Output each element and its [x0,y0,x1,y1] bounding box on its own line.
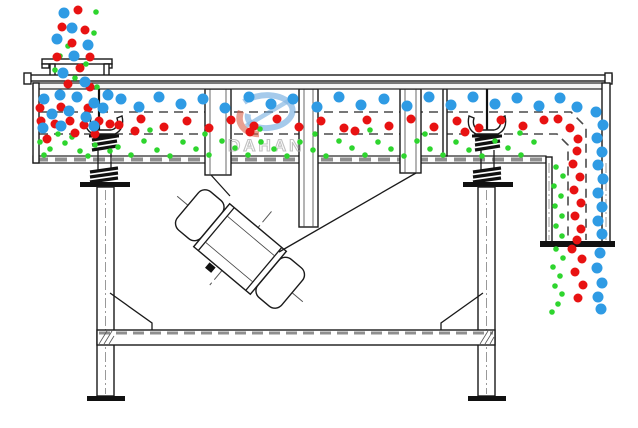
green-particle [107,148,113,154]
spring-assembly-right [463,89,513,187]
green-particle [72,75,78,81]
blue-particle [593,216,604,227]
rib-channel-3 [400,89,421,173]
red-particle [64,80,73,89]
blue-particle [598,120,609,131]
blue-particle [597,202,608,213]
blue-particle [593,188,604,199]
blue-particle [490,99,501,110]
green-particle [553,246,559,252]
green-particle [202,131,208,137]
gusset-left [110,293,152,330]
blue-particle [69,51,80,62]
green-particle [245,152,251,158]
base-plate-left [87,396,125,401]
red-particle [571,212,580,221]
blue-particle [595,248,606,259]
blue-particle [64,106,75,117]
blue-particle [266,99,277,110]
blue-particle [312,102,323,113]
green-particle [193,146,199,152]
blue-particle [89,121,100,132]
green-particle [557,273,563,279]
red-particle [407,115,416,124]
green-particle [310,147,316,153]
green-particle [47,146,53,152]
blue-particle [598,174,609,185]
base-plate-right [468,396,506,401]
cross-beam [97,330,495,345]
green-particle [517,130,523,136]
green-particle [479,153,485,159]
red-particle [430,123,439,132]
green-particle [83,61,89,67]
blue-particle [593,160,604,171]
red-particle [497,116,506,125]
red-particle [568,245,577,254]
spring-seat-plate-right [463,182,513,187]
blue-particle [58,68,69,79]
green-particle [94,84,100,90]
green-particle [284,153,290,159]
red-particle [573,236,582,245]
green-particle [552,283,558,289]
red-particle [569,160,578,169]
red-particle [74,6,83,15]
red-particle [68,39,77,48]
green-particle [518,152,524,158]
red-particle [519,122,528,131]
red-particle [36,104,45,113]
blue-particle [83,40,94,51]
blue-particle [244,92,255,103]
blue-particle [39,94,50,105]
red-particle [566,124,575,133]
blue-particle [512,93,523,104]
green-particle [553,164,559,170]
green-particle [92,142,98,148]
red-particle [317,117,326,126]
green-particle [388,146,394,152]
red-particle [106,120,115,129]
blue-particle [103,90,114,101]
green-particle [206,152,212,158]
red-particle [58,23,67,32]
red-particle [43,135,52,144]
green-particle [154,147,160,153]
green-particle [551,183,557,189]
green-particle [560,173,566,179]
blue-particle [572,102,583,113]
blue-particle [597,278,608,289]
green-particle [531,139,537,145]
green-particle [37,139,43,145]
red-particle [578,255,587,264]
red-particle [183,117,192,126]
green-particle [219,138,225,144]
green-particle [549,309,555,315]
green-particle [167,153,173,159]
green-particle [505,145,511,151]
blue-particle [592,263,603,274]
dahan-watermark-text: DAHAN [228,136,304,155]
green-particle [93,9,99,15]
red-particle [227,116,236,125]
blue-particle [591,107,602,118]
blue-particle [555,93,566,104]
red-particle [577,199,586,208]
red-particle [574,135,583,144]
blue-particle [402,101,413,112]
green-particle [559,291,565,297]
green-particle [555,301,561,307]
blue-particle [379,94,390,105]
green-particle [453,139,459,145]
blue-particle [59,8,70,19]
green-particle [375,139,381,145]
blue-particle [55,90,66,101]
rib-4 [443,89,447,156]
support-leg-right [478,187,495,396]
blue-particle [468,92,479,103]
green-particle [62,140,68,146]
red-particle [571,268,580,277]
green-particle [271,146,277,152]
green-particle [550,264,556,270]
coil-spring-right-lower [473,168,501,182]
red-particle [340,124,349,133]
green-particle [440,152,446,158]
blue-particle [47,109,58,120]
red-particle [351,127,360,136]
blue-particle [176,99,187,110]
green-particle [115,144,121,150]
red-particle [295,123,304,132]
red-particle [205,124,214,133]
red-particle [554,115,563,124]
red-particle [273,115,282,124]
blue-particle [597,147,608,158]
green-particle [91,30,97,36]
blue-particle [72,92,83,103]
green-particle [422,131,428,137]
blue-particle [98,103,109,114]
blue-particle [220,103,231,114]
red-particle [115,121,124,130]
red-particle [573,147,582,156]
green-particle [560,255,566,261]
green-particle [232,145,238,151]
spring-seat-plate-left [80,182,130,187]
red-particle [577,225,586,234]
red-particle [131,127,140,136]
red-particle [66,117,75,126]
blue-particle [80,77,91,88]
red-particle [246,128,255,137]
blue-particle [596,304,607,315]
blue-particle [356,100,367,111]
red-particle [574,294,583,303]
blue-particle [593,292,604,303]
support-leg-left [97,187,114,396]
blue-particle [288,94,299,105]
red-particle [137,115,146,124]
green-particle [414,138,420,144]
green-particle [362,152,368,158]
red-particle [570,186,579,195]
green-particle [258,139,264,145]
green-particle [147,127,153,133]
green-particle [552,203,558,209]
red-particle [475,124,484,133]
red-particle [461,128,470,137]
diagram-canvas: ® DAHAN [0,0,638,428]
green-particle [312,131,318,137]
green-particle [77,148,83,154]
blue-particle [134,102,145,113]
blue-particle [67,23,78,34]
green-particle [297,139,303,145]
blue-particle [592,133,603,144]
red-particle [576,173,585,182]
red-particle [453,117,462,126]
green-particle [466,147,472,153]
green-particle [558,193,564,199]
red-particle [363,116,372,125]
green-particle [41,152,47,158]
green-particle [141,138,147,144]
red-particle [579,281,588,290]
green-particle [349,145,355,151]
green-particle [323,153,329,159]
blue-particle [116,94,127,105]
blue-particle [56,121,67,132]
green-particle [180,139,186,145]
red-particle [86,53,95,62]
red-particle [385,122,394,131]
vibrating-screen-diagram: ® DAHAN [0,0,638,428]
green-particle [559,233,565,239]
blue-particle [81,112,92,123]
blue-particle [52,34,63,45]
blue-particle [198,94,209,105]
blue-particle [446,100,457,111]
green-particle [52,67,58,73]
red-particle [160,123,169,132]
green-particle [336,138,342,144]
green-particle [55,131,61,137]
gusset-right [441,293,483,330]
green-particle [367,127,373,133]
blue-particle [424,92,435,103]
red-particle [71,129,80,138]
blue-particle [597,229,608,240]
green-particle [401,153,407,159]
green-particle [85,153,91,159]
green-particle [553,223,559,229]
red-particle [53,53,62,62]
red-particle [540,116,549,125]
green-particle [128,152,134,158]
red-particle [76,64,85,73]
top-rail [24,73,612,89]
blue-particle [38,123,49,134]
coil-spring-left-lower [90,168,118,182]
blue-particle [154,92,165,103]
green-particle [492,138,498,144]
green-particle [427,146,433,152]
blue-particle [334,92,345,103]
red-particle [81,26,90,35]
blue-particle [534,101,545,112]
green-particle [559,213,565,219]
